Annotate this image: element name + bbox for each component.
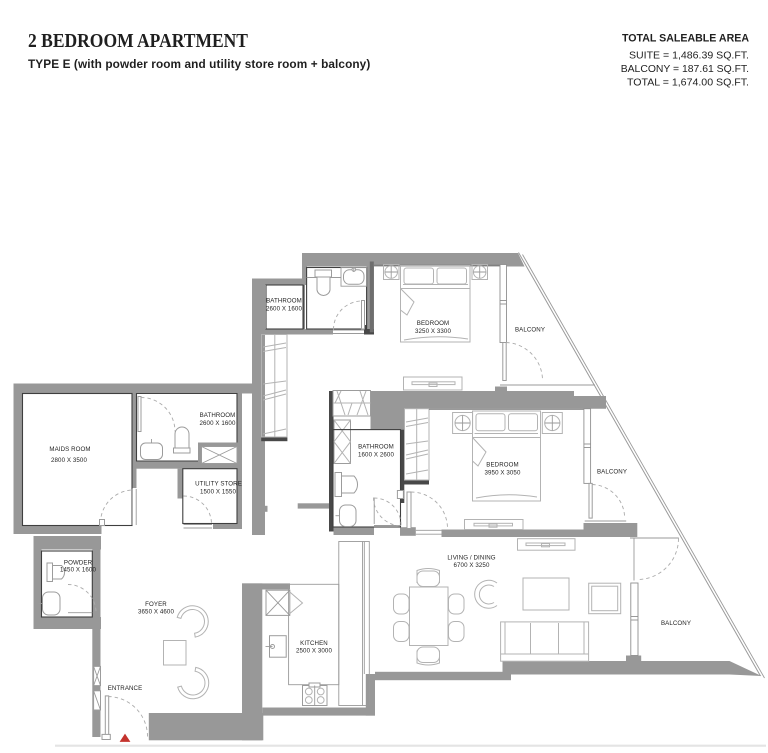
svg-text:BALCONY = 187.61 SQ.FT.: BALCONY = 187.61 SQ.FT. bbox=[621, 64, 749, 75]
svg-text:2800 X 3500: 2800 X 3500 bbox=[51, 457, 87, 464]
svg-text:6700 X 3250: 6700 X 3250 bbox=[454, 562, 490, 569]
svg-text:SUITE = 1,486.39 SQ.FT.: SUITE = 1,486.39 SQ.FT. bbox=[629, 51, 749, 62]
svg-text:2 BEDROOM APARTMENT: 2 BEDROOM APARTMENT bbox=[28, 30, 248, 52]
svg-text:1450 X 1600: 1450 X 1600 bbox=[60, 567, 96, 574]
svg-text:2600 X 1600: 2600 X 1600 bbox=[266, 306, 302, 313]
svg-text:BALCONY: BALCONY bbox=[597, 469, 627, 476]
svg-text:TOTAL SALEABLE AREA: TOTAL SALEABLE AREA bbox=[622, 33, 749, 45]
svg-text:KITCHEN: KITCHEN bbox=[300, 640, 328, 647]
svg-text:UTILITY STORE: UTILITY STORE bbox=[195, 481, 242, 488]
svg-text:ENTRANCE: ENTRANCE bbox=[108, 685, 143, 692]
svg-text:LIVING / DINING: LIVING / DINING bbox=[447, 555, 495, 562]
svg-text:3650 X 4600: 3650 X 4600 bbox=[138, 609, 174, 616]
svg-text:1500 X 1550: 1500 X 1550 bbox=[200, 489, 236, 496]
svg-text:BATHROOM: BATHROOM bbox=[358, 444, 394, 451]
svg-text:BEDROOM: BEDROOM bbox=[486, 462, 518, 469]
svg-text:TYPE E (with powder room and u: TYPE E (with powder room and utility sto… bbox=[28, 57, 370, 71]
svg-text:POWDER: POWDER bbox=[64, 560, 93, 567]
svg-text:3950 X 3050: 3950 X 3050 bbox=[485, 470, 521, 477]
svg-text:FOYER: FOYER bbox=[145, 601, 167, 608]
svg-text:1600 X 2600: 1600 X 2600 bbox=[358, 452, 394, 459]
svg-text:BALCONY: BALCONY bbox=[661, 620, 691, 627]
svg-text:2600 X 1600: 2600 X 1600 bbox=[200, 420, 236, 427]
svg-text:BEDROOM: BEDROOM bbox=[417, 320, 449, 327]
svg-text:BALCONY: BALCONY bbox=[515, 327, 545, 334]
svg-text:3250 X 3300: 3250 X 3300 bbox=[415, 328, 451, 335]
svg-text:MAIDS ROOM: MAIDS ROOM bbox=[49, 446, 90, 453]
svg-text:BATHROOM: BATHROOM bbox=[266, 298, 302, 305]
svg-text:TOTAL = 1,674.00 SQ.FT.: TOTAL = 1,674.00 SQ.FT. bbox=[627, 78, 749, 89]
svg-text:2500 X 3000: 2500 X 3000 bbox=[296, 648, 332, 655]
svg-text:BATHROOM: BATHROOM bbox=[200, 412, 236, 419]
